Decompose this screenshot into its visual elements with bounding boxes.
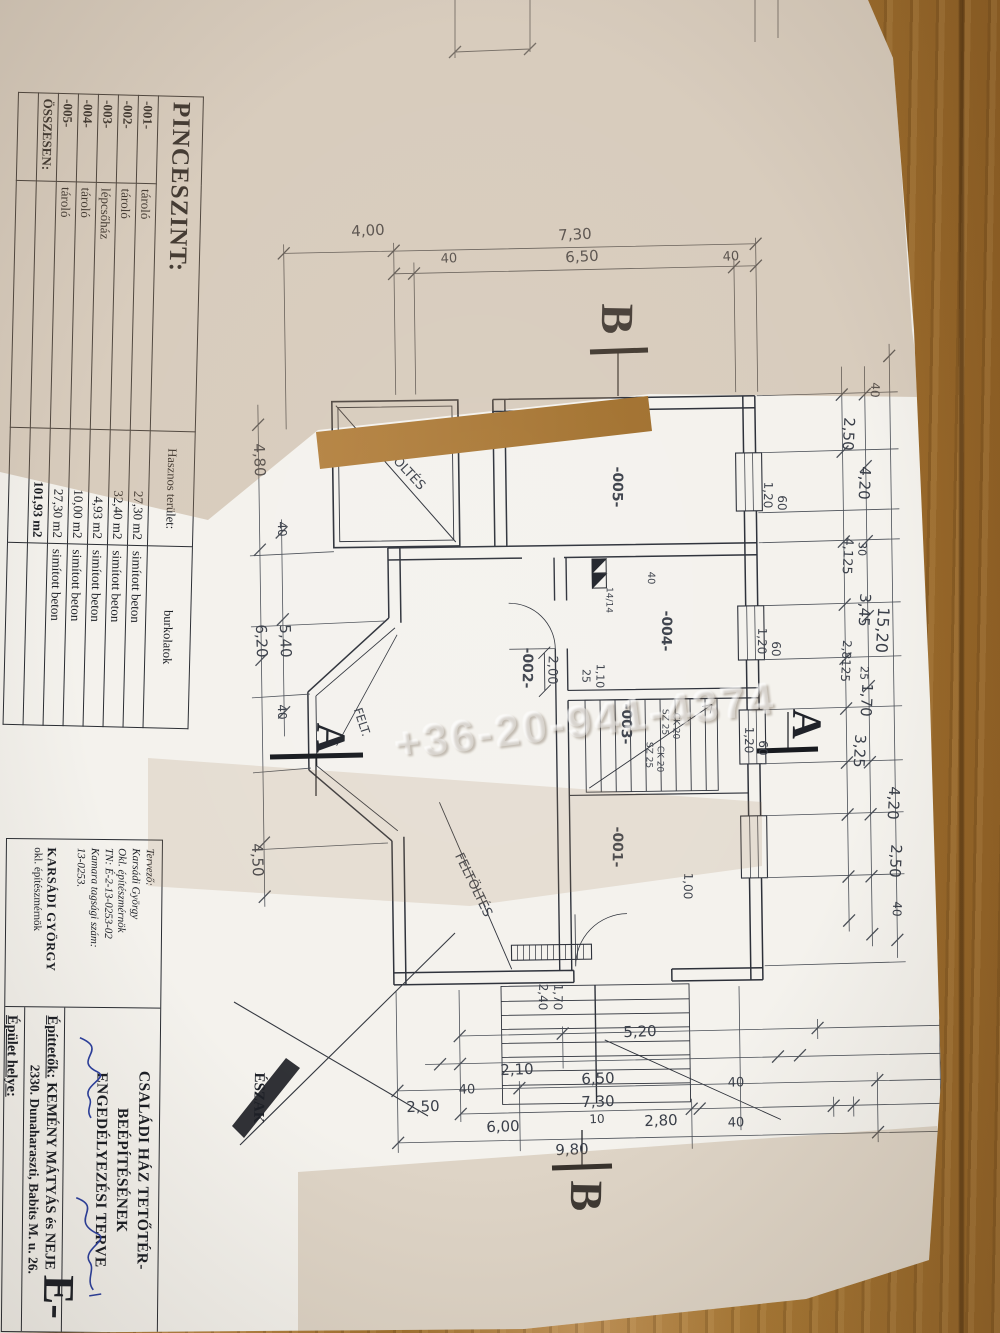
stair-label: SZ 25 — [659, 709, 668, 735]
dimension-label: 4,50 — [249, 843, 265, 877]
dimension-label: 4,125 — [840, 537, 855, 575]
dimension-label: 15,20 — [873, 607, 891, 654]
window-label: 60 — [776, 495, 788, 510]
dimension-label: 2,80 — [644, 1113, 678, 1129]
section-marker: B — [594, 303, 641, 334]
dimension-label: 1,70 — [858, 683, 875, 717]
dimension-label: 6,50 — [565, 249, 599, 266]
architect-stamp-name: KARSÁDI GYÖRGY — [43, 847, 60, 998]
area-column-header: Hasznos terület: — [147, 431, 195, 547]
dimension-label: 2,40 — [537, 984, 549, 1011]
room-label: -005- — [610, 466, 625, 507]
dimension-label: 7,30 — [581, 1094, 615, 1110]
dimension-label: 25 — [580, 669, 591, 683]
clients-label: Építtetők: — [44, 1015, 61, 1078]
sheet-code: E- — [36, 1275, 81, 1320]
section-marker: A — [785, 708, 828, 739]
dimension-label: 2,50 — [887, 844, 904, 878]
stair-label: SZ 25 — [643, 742, 652, 768]
dimension-label: 4,20 — [856, 466, 873, 500]
dimension-label: 6,50 — [581, 1071, 615, 1087]
room-label: -004- — [659, 610, 674, 651]
north-label: ÉSZAK — [250, 1072, 266, 1123]
architect-stamp-title: okl. építészmérnök — [31, 847, 45, 998]
schedule-table: PINCESZINT: Hasznos terület: burkolatok … — [7, 92, 204, 728]
dimension-label: 5,20 — [623, 1024, 657, 1040]
designer-label: Tervező: — [141, 848, 156, 999]
dimension-label: 40 — [869, 382, 882, 398]
drawing-paper-sheet: PINCESZINT: Hasznos terület: burkolatok … — [0, 0, 1000, 1333]
schedule-title: PINCESZINT: — [150, 96, 203, 432]
dimension-label: 1,10 — [594, 664, 605, 689]
clients-names: KEMÉNY MÁTYÁS és NEJE — [42, 1082, 60, 1270]
dimension-label: 40 — [440, 252, 457, 266]
dimension-label: 2,10 — [500, 1062, 534, 1078]
dimension-label: 7,30 — [558, 227, 592, 244]
section-marker: A — [309, 722, 352, 753]
window-label: 1,20 — [762, 482, 774, 509]
dimension-label: 1,00 — [682, 873, 694, 900]
designer-name: Karsádi György — [127, 848, 142, 999]
dimension-label: 2,50 — [406, 1099, 440, 1115]
dimension-label: 10 — [589, 1113, 605, 1126]
dimension-label: 40 — [722, 250, 739, 264]
site-label: Épület helye: — [4, 1015, 21, 1097]
window-label: 1,20 — [756, 628, 768, 655]
dimension-label: 5,40 — [277, 624, 293, 658]
dimension-label: 6,00 — [486, 1119, 520, 1135]
dimension-label: 4,20 — [885, 786, 902, 820]
dimension-label: 3,45 — [856, 593, 873, 627]
dimension-label: 4,00 — [351, 223, 385, 240]
dimension-label: 2,00 — [545, 655, 559, 684]
room-label: -001- — [610, 826, 625, 867]
dimension-label: 40 — [645, 572, 655, 585]
dimension-label: 2,50 — [840, 417, 857, 451]
dimension-label: 1,70 — [552, 984, 564, 1011]
dimension-label: 3,25 — [851, 734, 868, 768]
dimension-label: 40 — [728, 1076, 745, 1090]
window-label: 1,20 — [743, 727, 755, 754]
window-label: 60 — [770, 641, 782, 656]
dimension-label: 9,80 — [555, 1142, 589, 1158]
dimension-label: 40 — [891, 901, 904, 917]
stair-label: CK 20 — [654, 746, 663, 773]
dimension-label: 14/14 — [603, 587, 612, 613]
section-marker: B — [563, 1180, 610, 1211]
photo-of-floor-plan: PINCESZINT: Hasznos terület: burkolatok … — [0, 0, 1000, 1333]
dimension-label: 40 — [459, 1083, 476, 1097]
room-label: -002- — [520, 647, 535, 688]
dimension-label: 4,80 — [251, 443, 267, 477]
designer-info: Tervező: Karsádi György Okl. építészmérn… — [5, 839, 162, 1009]
stair-label: CK 20 — [670, 713, 679, 740]
room-label: -003- — [619, 703, 634, 744]
title-block: Tervező: Karsádi György Okl. építészmérn… — [1, 838, 163, 1333]
window-label: 60 — [757, 740, 769, 755]
schedule-table-body: -001-tároló27,30 m2simított beton-002-tá… — [3, 92, 158, 727]
dimension-label: 40 — [276, 521, 289, 537]
dimension-label: 40 — [276, 704, 289, 720]
dimension-label: 40 — [728, 1116, 745, 1130]
dimension-label: 25 — [858, 666, 870, 681]
site-row: Épület helye: 2330. Dunaharaszti, Babits… — [0, 1007, 25, 1331]
dimension-label: 30 — [856, 542, 868, 557]
finish-column-header: burkolatok — [143, 546, 192, 729]
dimension-label: 2,8125 — [839, 640, 853, 683]
dimension-label: 6,20 — [253, 624, 269, 658]
